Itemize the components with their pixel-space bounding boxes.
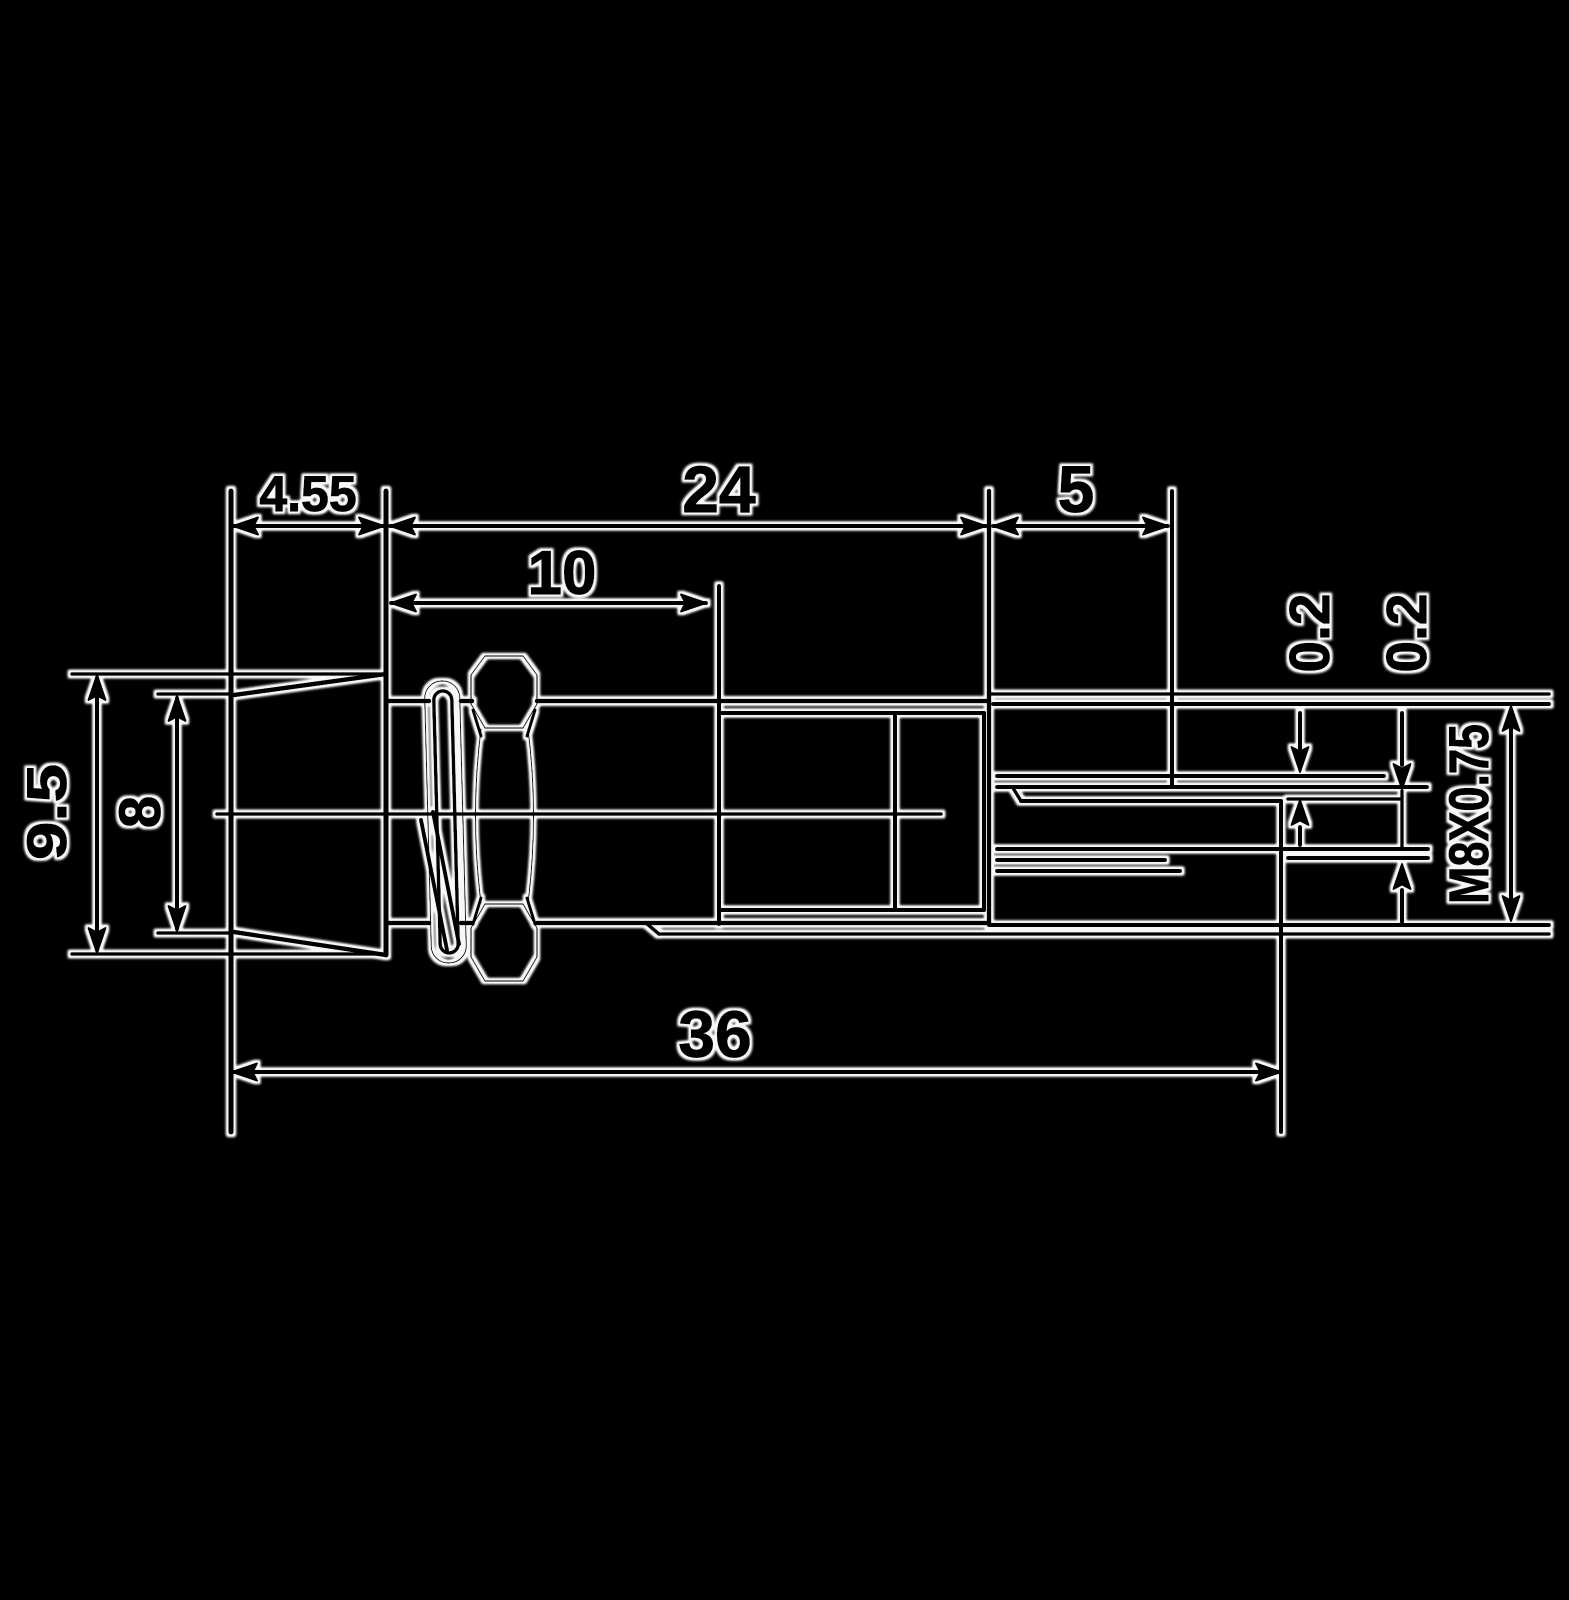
svg-text:24: 24 (682, 452, 756, 526)
svg-text:0.2: 0.2 (1375, 593, 1439, 672)
svg-text:10: 10 (528, 539, 597, 608)
svg-text:8: 8 (108, 796, 173, 828)
svg-text:36: 36 (678, 997, 751, 1071)
svg-text:0.2: 0.2 (1278, 593, 1342, 672)
svg-text:M8X0.75: M8X0.75 (1437, 724, 1500, 904)
svg-text:5: 5 (1058, 452, 1095, 526)
svg-text:4.55: 4.55 (259, 466, 356, 522)
svg-text:9.5: 9.5 (15, 764, 78, 860)
